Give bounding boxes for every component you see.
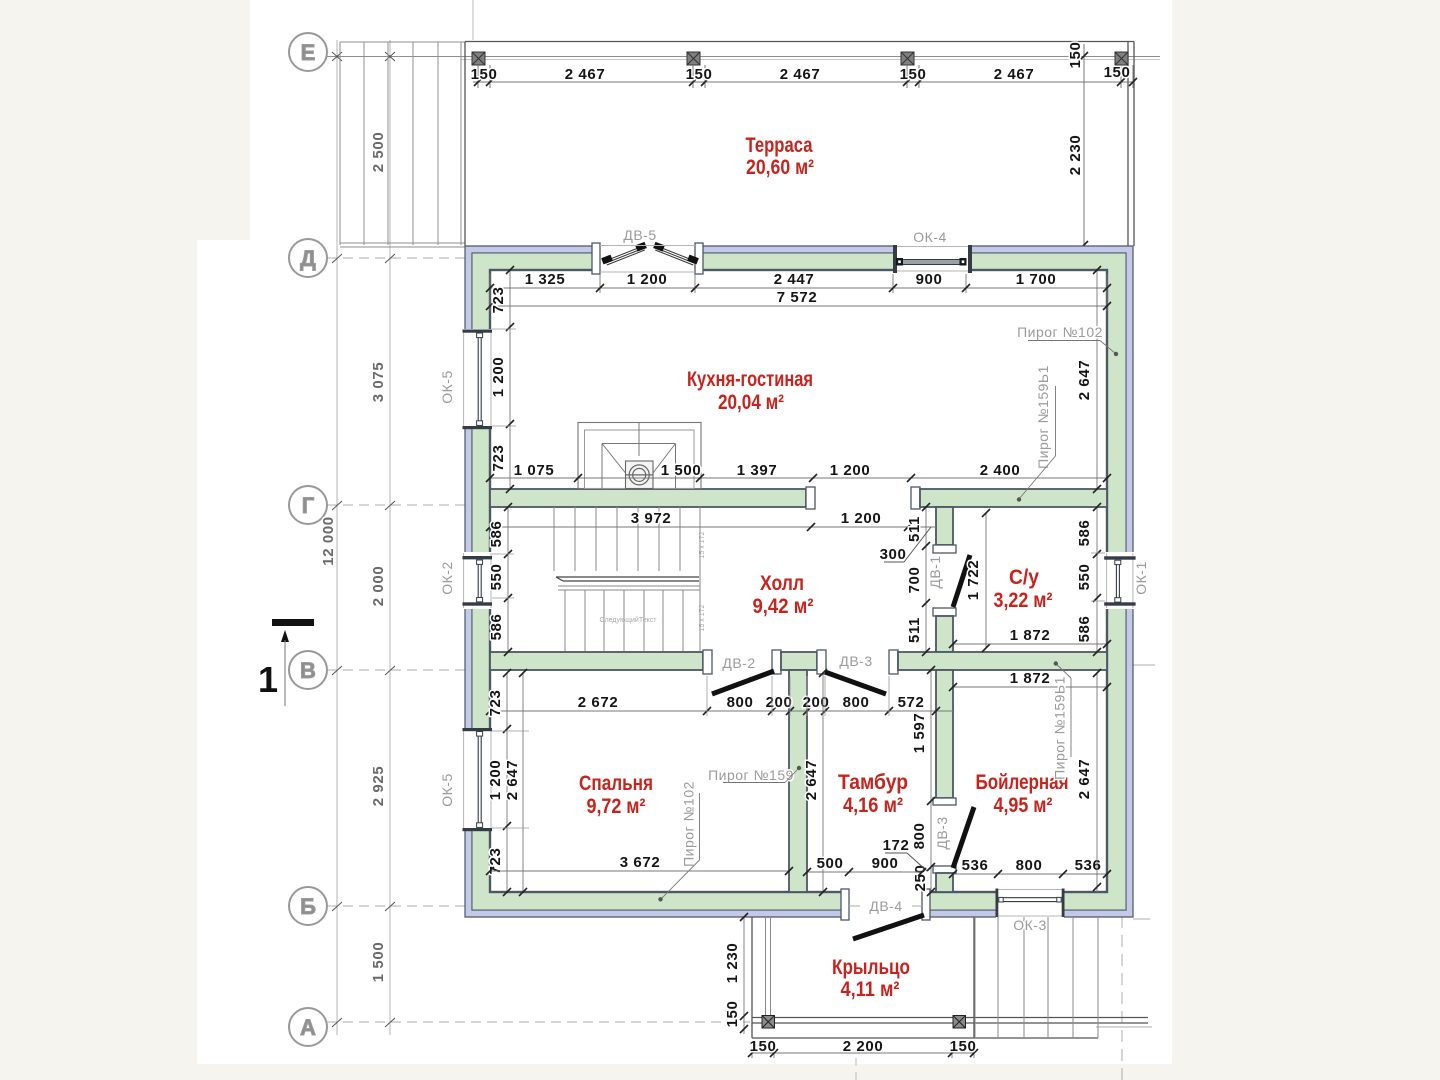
svg-text:586: 586 (488, 521, 505, 548)
svg-text:1 200: 1 200 (627, 271, 668, 288)
svg-text:1 200: 1 200 (490, 357, 507, 398)
svg-text:СледующийТекст: СледующийТекст (600, 616, 658, 624)
svg-text:ДВ-3: ДВ-3 (934, 816, 950, 849)
svg-text:ОК-2: ОК-2 (439, 561, 455, 595)
svg-text:2 647: 2 647 (1076, 360, 1093, 401)
svg-text:Спальня: Спальня (579, 772, 653, 795)
svg-text:В: В (300, 658, 316, 683)
svg-text:1: 1 (258, 659, 278, 700)
svg-text:150: 150 (1067, 42, 1084, 69)
svg-text:ОК-1: ОК-1 (1133, 561, 1149, 595)
svg-text:ОК-3: ОК-3 (1013, 917, 1047, 933)
svg-text:Б: Б (300, 894, 316, 919)
svg-text:511: 511 (906, 516, 923, 542)
svg-text:1 597: 1 597 (911, 713, 928, 754)
svg-text:2 447: 2 447 (774, 271, 815, 288)
svg-text:С/у: С/у (1009, 566, 1039, 589)
svg-text:ОК-5: ОК-5 (439, 370, 455, 404)
svg-text:150: 150 (724, 1001, 741, 1028)
svg-text:2 647: 2 647 (504, 760, 521, 801)
svg-text:Пирог №102: Пирог №102 (681, 781, 697, 867)
svg-text:1 722: 1 722 (965, 560, 982, 601)
svg-text:723: 723 (487, 690, 504, 717)
svg-text:ОК-4: ОК-4 (913, 229, 947, 245)
svg-text:4,16 м²: 4,16 м² (843, 794, 903, 817)
svg-text:Пирог №102: Пирог №102 (1017, 324, 1103, 340)
svg-text:900: 900 (916, 271, 943, 288)
svg-text:7 572: 7 572 (777, 289, 818, 306)
svg-text:550: 550 (488, 564, 505, 591)
svg-text:Пирог №159: Пирог №159 (708, 767, 794, 783)
svg-text:1 500: 1 500 (661, 462, 702, 479)
svg-text:586: 586 (1076, 520, 1093, 547)
svg-text:3 075: 3 075 (370, 362, 387, 403)
svg-text:572: 572 (898, 694, 925, 711)
svg-text:Кухня-гостиная: Кухня-гостиная (687, 368, 813, 391)
svg-text:1 200: 1 200 (487, 760, 504, 801)
svg-text:2 000: 2 000 (370, 566, 387, 607)
svg-text:1 872: 1 872 (1010, 627, 1051, 644)
svg-text:1 075: 1 075 (514, 462, 555, 479)
svg-text:9,42 м²: 9,42 м² (753, 595, 814, 618)
svg-text:3,22 м²: 3,22 м² (994, 589, 1053, 612)
svg-text:20,04 м²: 20,04 м² (718, 391, 784, 414)
svg-text:3 672: 3 672 (620, 854, 661, 871)
svg-text:1 325: 1 325 (525, 271, 566, 288)
svg-text:1 397: 1 397 (737, 462, 778, 479)
svg-text:800: 800 (843, 694, 870, 711)
svg-text:4,11 м²: 4,11 м² (841, 978, 900, 1001)
svg-text:ДВ-1: ДВ-1 (927, 555, 943, 588)
svg-text:2 500: 2 500 (370, 132, 387, 173)
svg-text:Г: Г (302, 493, 315, 518)
svg-text:1 230: 1 230 (724, 943, 741, 984)
svg-text:Д: Д (300, 246, 316, 271)
svg-text:Пирог №159Ь1: Пирог №159Ь1 (1035, 365, 1051, 469)
svg-text:Тамбур: Тамбур (838, 771, 908, 794)
svg-text:А: А (300, 1015, 316, 1040)
svg-text:2 925: 2 925 (370, 766, 387, 807)
svg-text:ДВ-4: ДВ-4 (869, 898, 902, 914)
svg-text:20,60 м²: 20,60 м² (746, 156, 814, 179)
svg-text:723: 723 (490, 287, 507, 314)
svg-text:9,72 м²: 9,72 м² (587, 795, 646, 818)
svg-text:723: 723 (490, 445, 507, 472)
svg-text:150: 150 (750, 1038, 777, 1055)
svg-text:586: 586 (1076, 616, 1093, 643)
svg-text:2 647: 2 647 (1076, 759, 1093, 800)
svg-text:ДВ-3: ДВ-3 (839, 653, 872, 669)
svg-text:900: 900 (872, 855, 899, 872)
svg-text:150: 150 (1104, 64, 1131, 81)
svg-text:3 972: 3 972 (631, 510, 672, 527)
svg-text:1 700: 1 700 (1016, 271, 1057, 288)
svg-text:ОК-5: ОК-5 (439, 773, 455, 807)
svg-text:1 200: 1 200 (830, 462, 871, 479)
svg-text:550: 550 (1076, 564, 1093, 591)
svg-text:586: 586 (488, 614, 505, 641)
svg-text:536: 536 (962, 857, 989, 874)
svg-text:Пирог №159Ь1: Пирог №159Ь1 (1052, 676, 1068, 780)
svg-text:1 872: 1 872 (1010, 670, 1051, 687)
svg-text:150: 150 (471, 66, 498, 83)
svg-text:2 230: 2 230 (1067, 135, 1084, 176)
svg-text:511: 511 (906, 617, 923, 643)
svg-text:150: 150 (950, 1038, 977, 1055)
svg-text:2 647: 2 647 (803, 760, 820, 801)
svg-text:1 500: 1 500 (370, 942, 387, 983)
svg-text:12 000: 12 000 (320, 516, 337, 565)
svg-text:500: 500 (817, 855, 844, 872)
svg-text:300: 300 (880, 546, 907, 563)
svg-text:Е: Е (301, 40, 316, 65)
svg-text:200: 200 (766, 694, 793, 711)
svg-text:2 467: 2 467 (780, 66, 821, 83)
svg-text:15 x 172: 15 x 172 (699, 531, 706, 558)
svg-text:150: 150 (900, 66, 927, 83)
svg-text:2 400: 2 400 (980, 462, 1021, 479)
svg-text:Терраса: Терраса (746, 134, 813, 157)
svg-text:2 672: 2 672 (578, 694, 619, 711)
svg-text:800: 800 (911, 823, 928, 850)
svg-text:150: 150 (686, 66, 713, 83)
svg-text:4,95 м²: 4,95 м² (994, 794, 1053, 817)
svg-text:ДВ-5: ДВ-5 (623, 227, 656, 243)
svg-text:2 200: 2 200 (843, 1038, 884, 1055)
svg-text:2 467: 2 467 (994, 66, 1035, 83)
svg-text:800: 800 (727, 694, 754, 711)
svg-text:Крыльцо: Крыльцо (832, 956, 910, 979)
svg-text:1 200: 1 200 (841, 510, 882, 527)
svg-text:Холл: Холл (760, 572, 804, 595)
svg-text:172: 172 (883, 837, 910, 854)
svg-text:2 467: 2 467 (565, 66, 606, 83)
svg-text:700: 700 (906, 567, 923, 594)
svg-text:ДВ-2: ДВ-2 (722, 655, 755, 671)
svg-text:15 x 172: 15 x 172 (699, 604, 706, 631)
svg-text:800: 800 (1016, 857, 1043, 874)
